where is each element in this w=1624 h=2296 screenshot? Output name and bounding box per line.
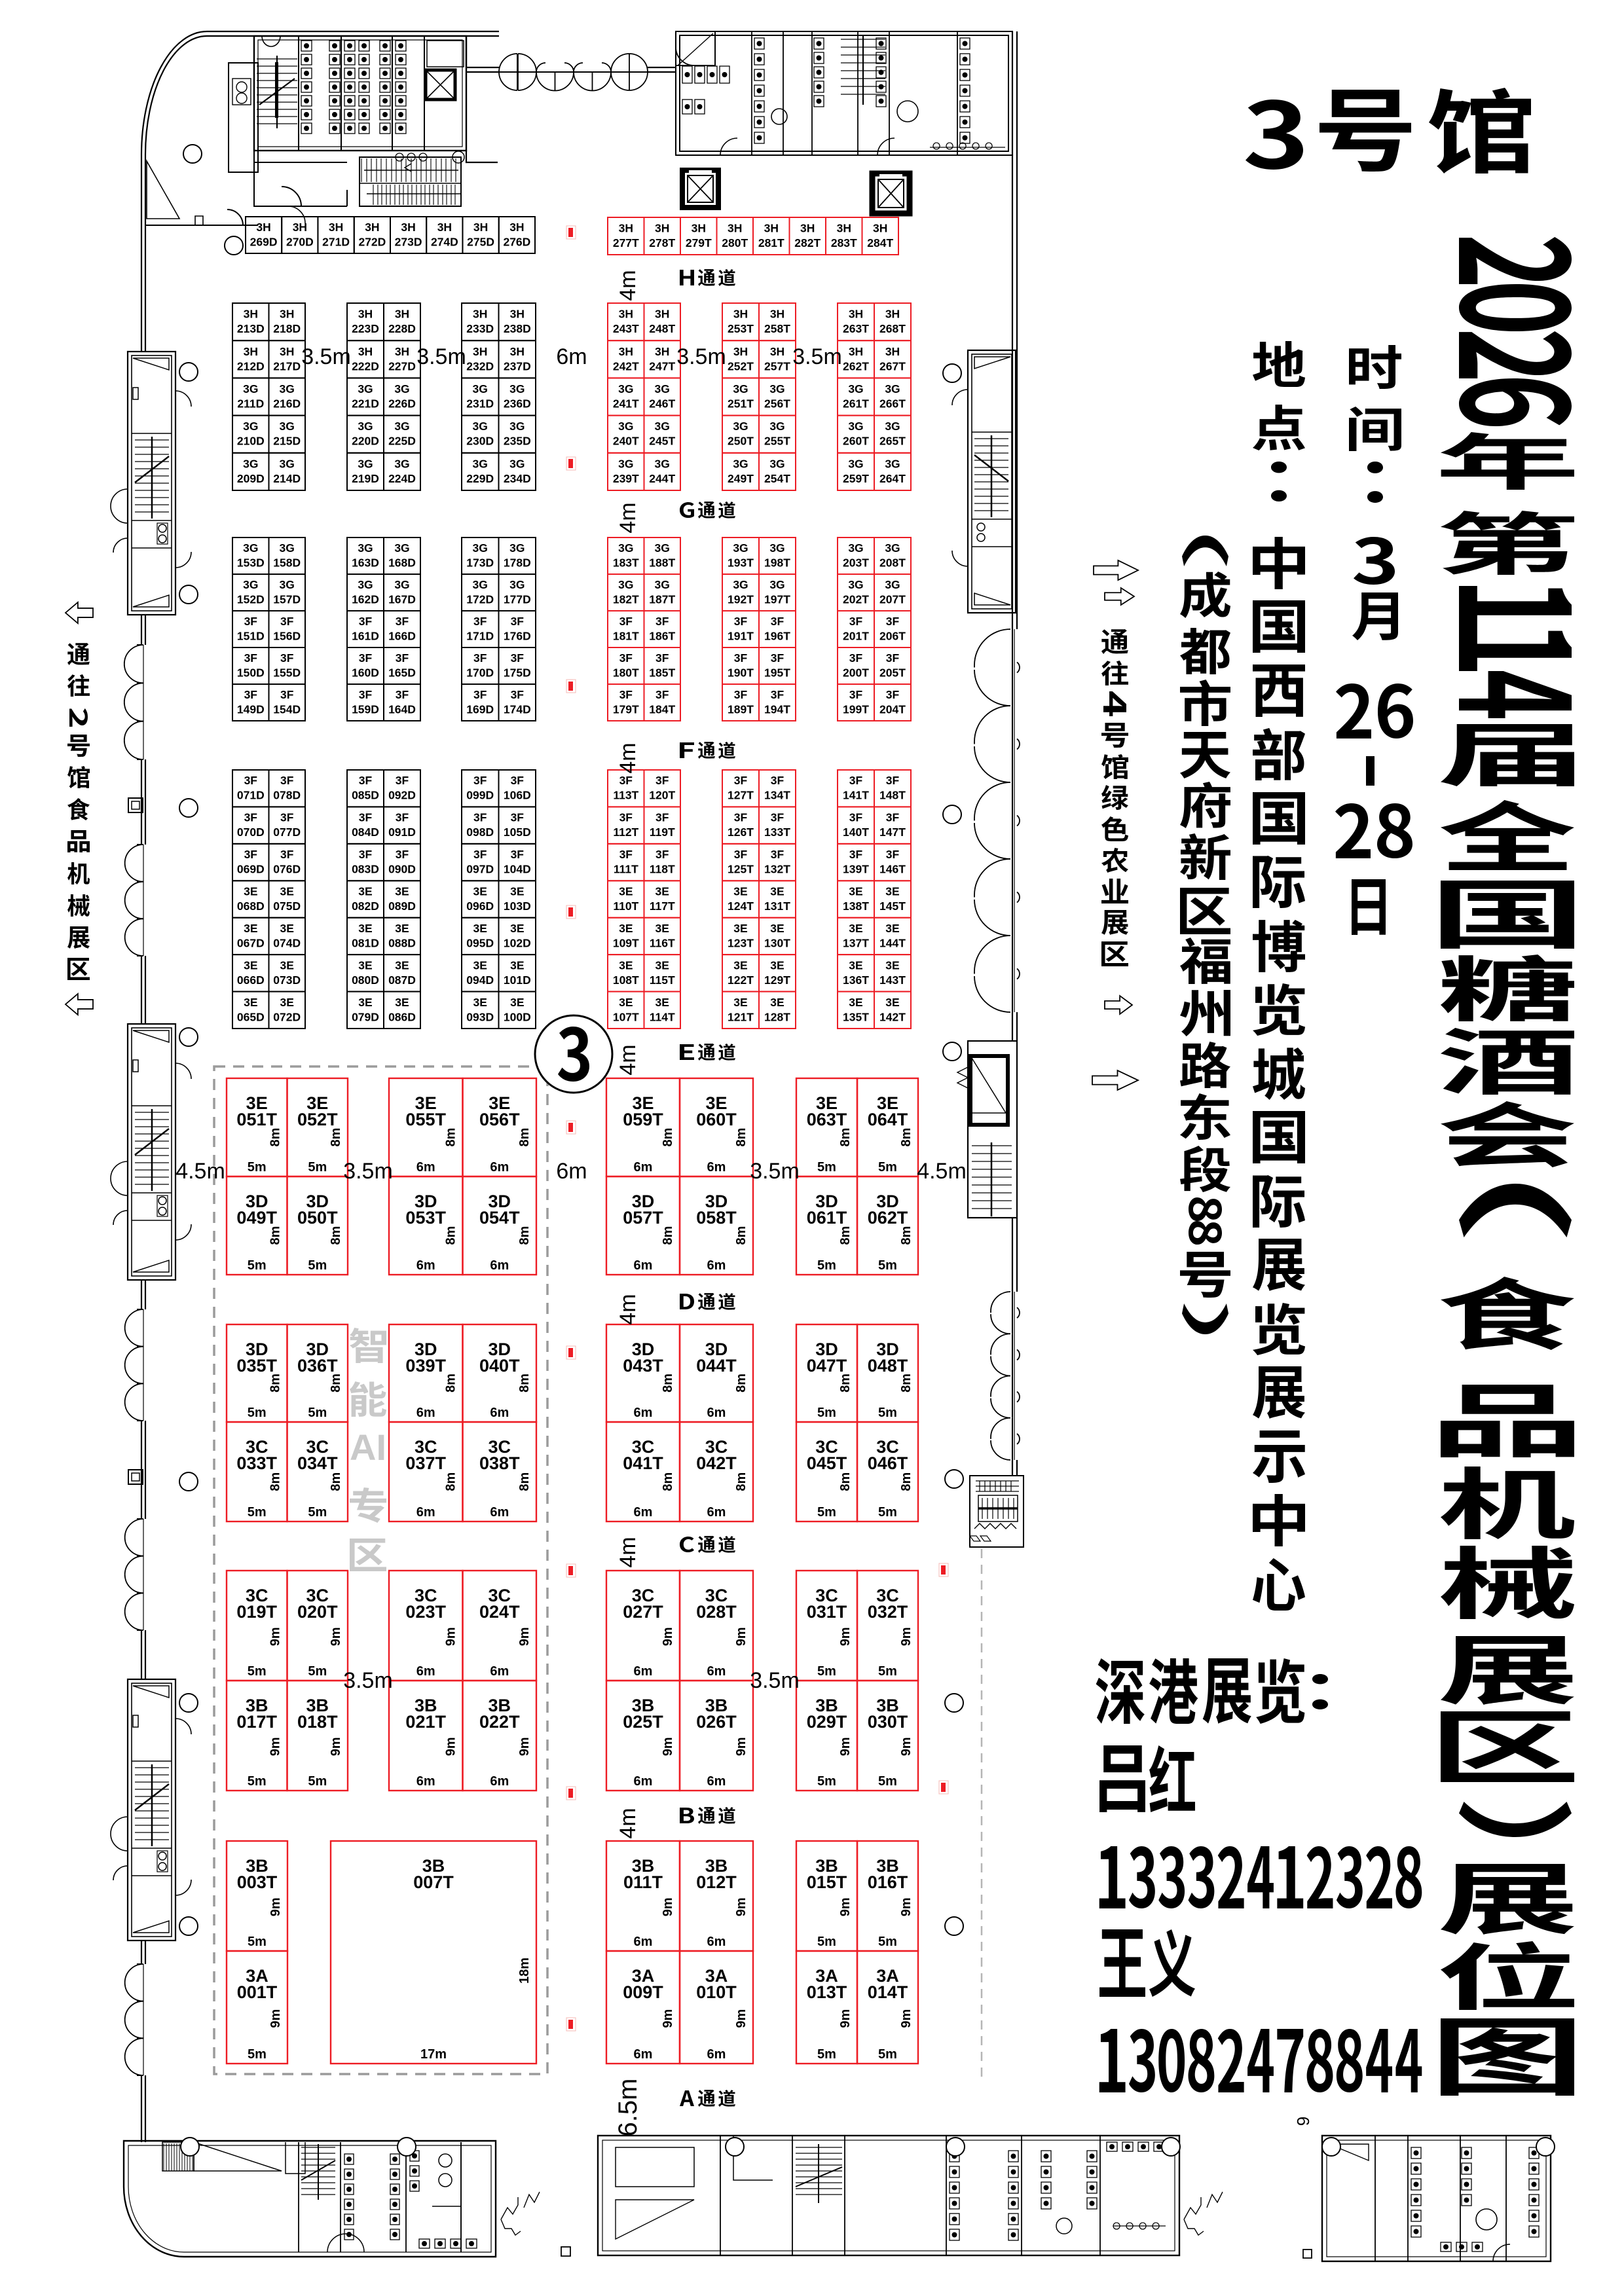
svg-text:3E: 3E <box>510 958 524 972</box>
svg-text:205T: 205T <box>879 666 906 680</box>
svg-text:3H: 3H <box>655 222 669 235</box>
svg-text:3F: 3F <box>244 688 258 701</box>
svg-text:3F: 3F <box>886 774 900 787</box>
svg-text:3G: 3G <box>848 382 863 395</box>
svg-text:3G: 3G <box>769 457 784 470</box>
svg-text:3G: 3G <box>618 457 633 470</box>
svg-text:3F: 3F <box>280 615 294 628</box>
svg-text:3F: 3F <box>771 774 784 787</box>
svg-text:6m: 6m <box>707 2047 726 2062</box>
svg-text:096D: 096D <box>466 900 494 913</box>
svg-text:135T: 135T <box>843 1010 869 1023</box>
svg-text:101D: 101D <box>504 974 531 987</box>
svg-text:3F: 3F <box>280 848 294 861</box>
svg-text:3F: 3F <box>244 811 258 824</box>
svg-text:3G: 3G <box>473 457 488 470</box>
svg-text:3G: 3G <box>769 578 784 591</box>
svg-text:3G: 3G <box>358 457 373 470</box>
svg-text:157D: 157D <box>273 593 301 606</box>
svg-text:9m: 9m <box>661 2009 675 2028</box>
svg-text:3G: 3G <box>280 382 295 395</box>
svg-text:099D: 099D <box>466 789 494 802</box>
svg-text:051T: 051T <box>236 1110 277 1129</box>
svg-text:3F: 3F <box>280 688 294 701</box>
svg-text:033T: 033T <box>236 1453 277 1473</box>
svg-text:195T: 195T <box>764 666 790 680</box>
svg-text:3G: 3G <box>769 382 784 395</box>
svg-text:202T: 202T <box>843 593 869 606</box>
svg-text:3H: 3H <box>395 345 409 358</box>
svg-text:3G: 3G <box>509 420 525 433</box>
svg-text:152D: 152D <box>237 593 265 606</box>
svg-text:3G: 3G <box>243 541 258 555</box>
svg-text:155D: 155D <box>273 666 301 680</box>
svg-text:079D: 079D <box>352 1010 379 1023</box>
svg-text:4m: 4m <box>616 502 640 533</box>
svg-text:3G: 3G <box>473 382 488 395</box>
svg-text:5m: 5m <box>878 1406 897 1420</box>
svg-text:3G: 3G <box>358 578 373 591</box>
svg-text:9m: 9m <box>268 2009 283 2028</box>
svg-text:015T: 015T <box>807 1872 847 1892</box>
svg-text:262T: 262T <box>843 359 869 373</box>
svg-text:161D: 161D <box>352 630 379 643</box>
svg-text:3F: 3F <box>511 774 525 787</box>
svg-text:8m: 8m <box>899 1374 913 1393</box>
svg-text:139T: 139T <box>843 863 869 876</box>
svg-text:3E: 3E <box>395 885 409 898</box>
svg-text:271D: 271D <box>322 236 350 249</box>
svg-text:8m: 8m <box>329 1472 343 1491</box>
svg-text:3E: 3E <box>358 922 372 935</box>
svg-text:3F: 3F <box>655 651 669 665</box>
svg-text:012T: 012T <box>696 1872 737 1892</box>
svg-text:252T: 252T <box>728 359 754 373</box>
svg-text:3H: 3H <box>770 308 784 321</box>
svg-text:3E: 3E <box>885 922 899 935</box>
svg-text:3G: 3G <box>848 457 863 470</box>
svg-text:3H: 3H <box>509 221 524 234</box>
svg-text:5m: 5m <box>878 1258 897 1273</box>
svg-text:030T: 030T <box>868 1712 908 1732</box>
svg-text:219D: 219D <box>352 472 379 485</box>
svg-text:3G: 3G <box>280 541 295 555</box>
svg-text:128T: 128T <box>764 1010 790 1023</box>
svg-text:3F: 3F <box>511 688 525 701</box>
svg-text:021T: 021T <box>405 1712 446 1732</box>
svg-text:3E: 3E <box>770 885 784 898</box>
svg-text:146T: 146T <box>879 863 906 876</box>
svg-text:227D: 227D <box>388 359 416 373</box>
svg-text:3G: 3G <box>509 541 525 555</box>
svg-text:145T: 145T <box>879 900 906 913</box>
svg-text:5m: 5m <box>878 1774 897 1789</box>
svg-text:3G: 3G <box>394 541 409 555</box>
svg-text:058T: 058T <box>696 1208 737 1228</box>
svg-text:8m: 8m <box>838 1374 853 1393</box>
svg-text:3F: 3F <box>849 774 863 787</box>
svg-text:209D: 209D <box>237 472 265 485</box>
svg-text:6m: 6m <box>634 1774 653 1789</box>
svg-text:6m: 6m <box>490 1774 509 1789</box>
svg-text:17m: 17m <box>420 2047 447 2062</box>
svg-text:106D: 106D <box>504 789 531 802</box>
svg-text:251T: 251T <box>728 397 754 410</box>
svg-text:040T: 040T <box>479 1356 520 1376</box>
svg-text:3H: 3H <box>619 308 633 321</box>
svg-text:094D: 094D <box>466 974 494 987</box>
svg-text:3H: 3H <box>395 308 409 321</box>
svg-text:138T: 138T <box>843 900 869 913</box>
svg-text:3F: 3F <box>771 848 784 861</box>
svg-text:8m: 8m <box>661 1374 675 1393</box>
svg-text:6m: 6m <box>490 1505 509 1520</box>
svg-text:6m: 6m <box>556 1159 587 1184</box>
svg-text:8m: 8m <box>899 1226 913 1245</box>
svg-text:8m: 8m <box>838 1128 853 1147</box>
svg-text:092D: 092D <box>388 789 416 802</box>
svg-text:183T: 183T <box>613 556 639 570</box>
svg-text:074D: 074D <box>273 936 301 949</box>
svg-text:3G: 3G <box>509 382 525 395</box>
svg-text:121T: 121T <box>728 1010 754 1023</box>
svg-text:4.5m: 4.5m <box>175 1159 225 1184</box>
svg-text:217D: 217D <box>273 359 301 373</box>
svg-text:3E: 3E <box>733 922 747 935</box>
svg-text:5m: 5m <box>817 1774 836 1789</box>
svg-text:093D: 093D <box>466 1010 494 1023</box>
svg-text:127T: 127T <box>728 789 754 802</box>
svg-text:3H: 3H <box>885 308 900 321</box>
svg-text:3F: 3F <box>734 615 748 628</box>
svg-text:047T: 047T <box>807 1356 847 1376</box>
svg-text:167D: 167D <box>388 593 416 606</box>
svg-text:3G: 3G <box>618 382 633 395</box>
svg-text:112T: 112T <box>613 826 638 839</box>
svg-text:3H: 3H <box>401 221 415 234</box>
svg-text:160D: 160D <box>352 666 379 680</box>
svg-text:3F: 3F <box>473 848 487 861</box>
svg-text:3.5m: 3.5m <box>792 344 842 369</box>
svg-text:188T: 188T <box>649 556 675 570</box>
svg-text:256T: 256T <box>764 397 790 410</box>
svg-text:8m: 8m <box>517 1374 532 1393</box>
svg-text:9m: 9m <box>268 1627 283 1646</box>
svg-text:134T: 134T <box>764 789 790 802</box>
svg-text:180T: 180T <box>613 666 639 680</box>
svg-text:5m: 5m <box>878 1160 897 1175</box>
svg-text:9m: 9m <box>734 1897 748 1916</box>
svg-text:3H: 3H <box>293 221 307 234</box>
svg-text:211D: 211D <box>237 397 264 410</box>
svg-text:5m: 5m <box>308 1505 327 1520</box>
svg-text:5m: 5m <box>248 1664 267 1679</box>
svg-text:3G: 3G <box>885 382 900 395</box>
svg-text:184T: 184T <box>649 703 675 716</box>
svg-text:3E: 3E <box>244 958 257 972</box>
svg-text:3F: 3F <box>511 848 525 861</box>
svg-text:250T: 250T <box>728 435 754 448</box>
svg-text:269D: 269D <box>250 236 278 249</box>
svg-text:151D: 151D <box>237 630 265 643</box>
svg-text:3F: 3F <box>849 688 863 701</box>
svg-text:081D: 081D <box>352 936 379 949</box>
svg-text:083D: 083D <box>352 863 379 876</box>
svg-text:6m: 6m <box>707 1664 726 1679</box>
svg-text:080D: 080D <box>352 974 379 987</box>
svg-text:5m: 5m <box>817 1935 836 1949</box>
svg-text:070D: 070D <box>237 826 265 839</box>
svg-text:3E: 3E <box>655 885 669 898</box>
svg-text:144T: 144T <box>879 936 906 949</box>
svg-text:110T: 110T <box>613 900 638 913</box>
svg-text:067D: 067D <box>237 936 265 949</box>
svg-text:8m: 8m <box>661 1128 675 1147</box>
svg-text:5m: 5m <box>878 1935 897 1949</box>
svg-text:3H: 3H <box>473 308 487 321</box>
svg-text:3F: 3F <box>734 651 748 665</box>
svg-text:3F: 3F <box>244 774 258 787</box>
svg-text:8m: 8m <box>734 1374 748 1393</box>
svg-text:249T: 249T <box>728 472 754 485</box>
svg-text:6m: 6m <box>634 1406 653 1420</box>
svg-text:9m: 9m <box>838 1627 853 1646</box>
svg-text:3E: 3E <box>473 996 487 1009</box>
svg-text:166D: 166D <box>388 630 416 643</box>
svg-text:3F: 3F <box>734 774 748 787</box>
svg-text:3H: 3H <box>329 221 343 234</box>
svg-text:041T: 041T <box>623 1453 663 1473</box>
svg-text:3G: 3G <box>655 420 670 433</box>
svg-text:223D: 223D <box>352 322 379 335</box>
svg-text:6m: 6m <box>634 1160 653 1175</box>
svg-text:245T: 245T <box>649 435 675 448</box>
svg-text:045T: 045T <box>807 1453 847 1473</box>
svg-text:3H: 3H <box>770 345 784 358</box>
svg-text:154D: 154D <box>273 703 301 716</box>
svg-text:8m: 8m <box>329 1128 343 1147</box>
svg-text:046T: 046T <box>868 1453 908 1473</box>
svg-text:3E: 3E <box>849 922 862 935</box>
svg-text:175D: 175D <box>504 666 531 680</box>
svg-text:069D: 069D <box>237 863 265 876</box>
svg-text:5m: 5m <box>308 1406 327 1420</box>
svg-text:8m: 8m <box>899 1128 913 1147</box>
svg-text:3F: 3F <box>886 615 900 628</box>
svg-text:031T: 031T <box>807 1602 847 1622</box>
svg-text:090D: 090D <box>388 863 416 876</box>
svg-text:8m: 8m <box>734 1128 748 1147</box>
svg-text:037T: 037T <box>405 1453 446 1473</box>
svg-text:6m: 6m <box>707 1505 726 1520</box>
svg-text:3F: 3F <box>359 651 373 665</box>
svg-text:248T: 248T <box>649 322 675 335</box>
svg-text:5m: 5m <box>248 1406 267 1420</box>
svg-text:123T: 123T <box>728 936 754 949</box>
svg-text:3G: 3G <box>243 420 258 433</box>
svg-text:3E: 3E <box>358 996 372 1009</box>
svg-text:8m: 8m <box>268 1226 283 1245</box>
svg-text:6m: 6m <box>490 1258 509 1273</box>
svg-text:132T: 132T <box>764 863 790 876</box>
svg-text:8m: 8m <box>268 1128 283 1147</box>
svg-text:3G: 3G <box>848 578 863 591</box>
svg-text:117T: 117T <box>650 900 675 913</box>
svg-text:6m: 6m <box>707 1774 726 1789</box>
svg-text:189T: 189T <box>728 703 754 716</box>
svg-text:259T: 259T <box>843 472 869 485</box>
svg-text:3E: 3E <box>655 922 669 935</box>
svg-text:098D: 098D <box>466 826 494 839</box>
svg-text:001T: 001T <box>237 1982 278 2002</box>
svg-text:3F: 3F <box>619 774 633 787</box>
svg-text:199T: 199T <box>843 703 869 716</box>
svg-text:5m: 5m <box>817 2047 836 2062</box>
svg-text:6m: 6m <box>490 1406 509 1420</box>
svg-text:5m: 5m <box>817 1406 836 1420</box>
svg-text:3F: 3F <box>771 688 784 701</box>
svg-text:3F: 3F <box>396 651 409 665</box>
svg-text:174D: 174D <box>504 703 531 716</box>
svg-text:9m: 9m <box>444 1627 458 1646</box>
svg-text:177D: 177D <box>504 593 531 606</box>
svg-text:055T: 055T <box>405 1110 446 1129</box>
svg-text:283T: 283T <box>831 236 857 249</box>
svg-text:3G: 3G <box>473 578 488 591</box>
svg-text:073D: 073D <box>273 974 301 987</box>
svg-text:3F: 3F <box>655 615 669 628</box>
svg-text:3G: 3G <box>394 578 409 591</box>
svg-text:3G: 3G <box>733 578 748 591</box>
svg-text:9m: 9m <box>734 1627 748 1646</box>
svg-text:18m: 18m <box>517 1958 532 1984</box>
svg-text:126T: 126T <box>728 826 754 839</box>
svg-text:3G: 3G <box>733 420 748 433</box>
svg-text:3H: 3H <box>885 345 900 358</box>
svg-text:3H: 3H <box>244 308 258 321</box>
svg-text:060T: 060T <box>696 1110 737 1129</box>
svg-text:5m: 5m <box>248 1935 267 1949</box>
svg-text:130T: 130T <box>764 936 790 949</box>
svg-text:6m: 6m <box>416 1505 435 1520</box>
svg-text:4m: 4m <box>616 270 640 301</box>
svg-text:8m: 8m <box>838 1472 853 1491</box>
svg-text:197T: 197T <box>764 593 790 606</box>
svg-text:3F: 3F <box>244 615 258 628</box>
svg-text:3E: 3E <box>849 885 862 898</box>
svg-text:3E: 3E <box>733 885 747 898</box>
svg-text:036T: 036T <box>297 1356 338 1376</box>
svg-text:119T: 119T <box>650 826 675 839</box>
svg-text:3G: 3G <box>733 457 748 470</box>
svg-text:240T: 240T <box>613 435 639 448</box>
svg-text:3H: 3H <box>619 345 633 358</box>
svg-text:153D: 153D <box>237 556 265 570</box>
svg-text:6m: 6m <box>416 1664 435 1679</box>
svg-text:5m: 5m <box>817 1505 836 1520</box>
svg-text:053T: 053T <box>405 1208 446 1228</box>
svg-text:220D: 220D <box>352 435 379 448</box>
svg-text:3F: 3F <box>473 811 487 824</box>
svg-text:5m: 5m <box>248 1505 267 1520</box>
svg-text:3E: 3E <box>244 885 257 898</box>
svg-text:231D: 231D <box>466 397 494 410</box>
svg-text:100D: 100D <box>504 1010 531 1023</box>
svg-text:213D: 213D <box>237 322 265 335</box>
svg-text:3E: 3E <box>849 958 862 972</box>
svg-text:273D: 273D <box>395 236 422 249</box>
svg-text:3H: 3H <box>764 222 779 235</box>
svg-text:3E: 3E <box>770 958 784 972</box>
svg-text:226D: 226D <box>388 397 416 410</box>
svg-text:5m: 5m <box>248 1774 267 1789</box>
svg-text:268T: 268T <box>879 322 906 335</box>
svg-text:3G: 3G <box>358 420 373 433</box>
svg-text:159D: 159D <box>352 703 379 716</box>
svg-text:232D: 232D <box>466 359 494 373</box>
svg-text:3E: 3E <box>280 958 293 972</box>
svg-text:3E: 3E <box>619 922 633 935</box>
svg-text:3E: 3E <box>280 885 293 898</box>
svg-text:5m: 5m <box>878 2047 897 2062</box>
svg-text:5m: 5m <box>308 1774 327 1789</box>
svg-text:3H: 3H <box>655 345 669 358</box>
svg-text:125T: 125T <box>728 863 754 876</box>
svg-text:3.5m: 3.5m <box>676 344 726 369</box>
svg-text:086D: 086D <box>388 1010 416 1023</box>
svg-text:163D: 163D <box>352 556 379 570</box>
svg-text:212D: 212D <box>237 359 265 373</box>
svg-text:181T: 181T <box>613 630 639 643</box>
svg-text:275D: 275D <box>467 236 494 249</box>
svg-text:3F: 3F <box>280 774 294 787</box>
svg-text:3E: 3E <box>244 922 257 935</box>
svg-text:9m: 9m <box>899 1737 913 1756</box>
svg-text:3F: 3F <box>473 688 487 701</box>
svg-text:3F: 3F <box>396 811 409 824</box>
svg-text:5m: 5m <box>248 1258 267 1273</box>
svg-text:192T: 192T <box>728 593 754 606</box>
svg-text:3.5m: 3.5m <box>750 1159 800 1184</box>
svg-text:3F: 3F <box>280 811 294 824</box>
svg-text:3F: 3F <box>396 774 409 787</box>
svg-text:6m: 6m <box>416 1160 435 1175</box>
svg-text:3H: 3H <box>837 222 851 235</box>
svg-text:3H: 3H <box>256 221 270 234</box>
svg-text:246T: 246T <box>649 397 675 410</box>
svg-text:3F: 3F <box>511 811 525 824</box>
svg-text:035T: 035T <box>236 1356 277 1376</box>
svg-text:3H: 3H <box>280 308 294 321</box>
svg-text:105D: 105D <box>504 826 531 839</box>
svg-text:3G: 3G <box>885 578 900 591</box>
svg-text:4m: 4m <box>616 1294 640 1324</box>
svg-text:150D: 150D <box>237 666 265 680</box>
svg-text:066D: 066D <box>237 974 265 987</box>
svg-text:239T: 239T <box>613 472 639 485</box>
svg-text:9m: 9m <box>268 1737 283 1756</box>
svg-text:131T: 131T <box>764 900 790 913</box>
svg-text:034T: 034T <box>297 1453 338 1473</box>
svg-text:9m: 9m <box>329 1627 343 1646</box>
svg-text:280T: 280T <box>722 236 748 249</box>
svg-text:9m: 9m <box>661 1897 675 1916</box>
svg-text:3E: 3E <box>619 996 633 1009</box>
svg-text:3E: 3E <box>770 922 784 935</box>
svg-text:191T: 191T <box>728 630 754 643</box>
svg-text:010T: 010T <box>696 1982 737 2002</box>
svg-text:148T: 148T <box>879 789 906 802</box>
